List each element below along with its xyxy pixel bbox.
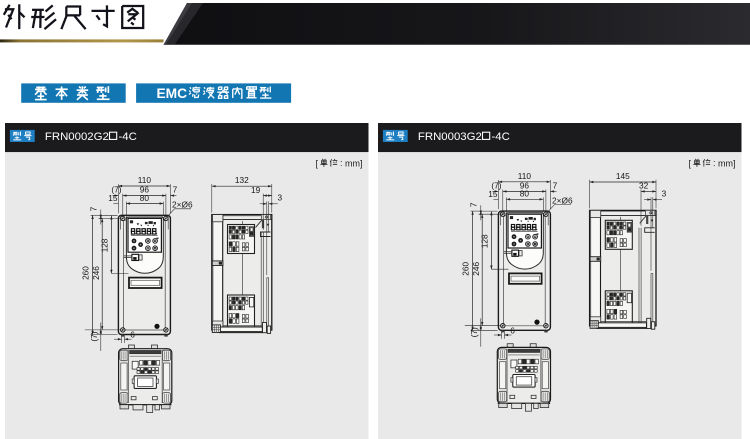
- svg-text:80: 80: [140, 193, 150, 203]
- svg-text:EMC: EMC: [156, 86, 187, 101]
- svg-text:-4C: -4C: [492, 131, 510, 143]
- svg-text:19: 19: [251, 185, 261, 195]
- svg-text:mm]: mm]: [345, 159, 363, 169]
- svg-text:FRN0003G2: FRN0003G2: [418, 131, 482, 143]
- svg-text:mm]: mm]: [718, 159, 736, 169]
- svg-text::: :: [713, 158, 716, 168]
- svg-text:132: 132: [235, 175, 249, 185]
- svg-text:246: 246: [91, 266, 101, 280]
- svg-text:6: 6: [130, 330, 135, 340]
- svg-text:246: 246: [471, 261, 481, 275]
- svg-text:7: 7: [173, 185, 178, 195]
- svg-text:7: 7: [468, 202, 478, 207]
- svg-text:3: 3: [277, 193, 282, 203]
- svg-text:(7): (7): [469, 327, 479, 337]
- svg-text::: :: [340, 158, 343, 168]
- svg-text:80: 80: [520, 189, 530, 199]
- svg-text:-4C: -4C: [119, 131, 137, 143]
- svg-text:128: 128: [479, 234, 489, 248]
- svg-text:7: 7: [88, 206, 98, 211]
- svg-text:145: 145: [616, 171, 630, 181]
- svg-text:2×Ø6: 2×Ø6: [552, 195, 573, 205]
- svg-text:128: 128: [99, 238, 109, 252]
- svg-text:260: 260: [460, 261, 470, 275]
- svg-text:7: 7: [553, 180, 558, 190]
- svg-text:FRN0002G2: FRN0002G2: [45, 131, 109, 143]
- svg-text:260: 260: [80, 266, 90, 280]
- svg-text:3: 3: [662, 188, 667, 198]
- svg-text:32: 32: [639, 181, 649, 191]
- svg-text:(7): (7): [89, 331, 99, 341]
- svg-text:6: 6: [510, 325, 515, 335]
- svg-text:15: 15: [108, 193, 118, 203]
- svg-text:2×Ø6: 2×Ø6: [172, 200, 193, 210]
- svg-text:15: 15: [488, 189, 498, 199]
